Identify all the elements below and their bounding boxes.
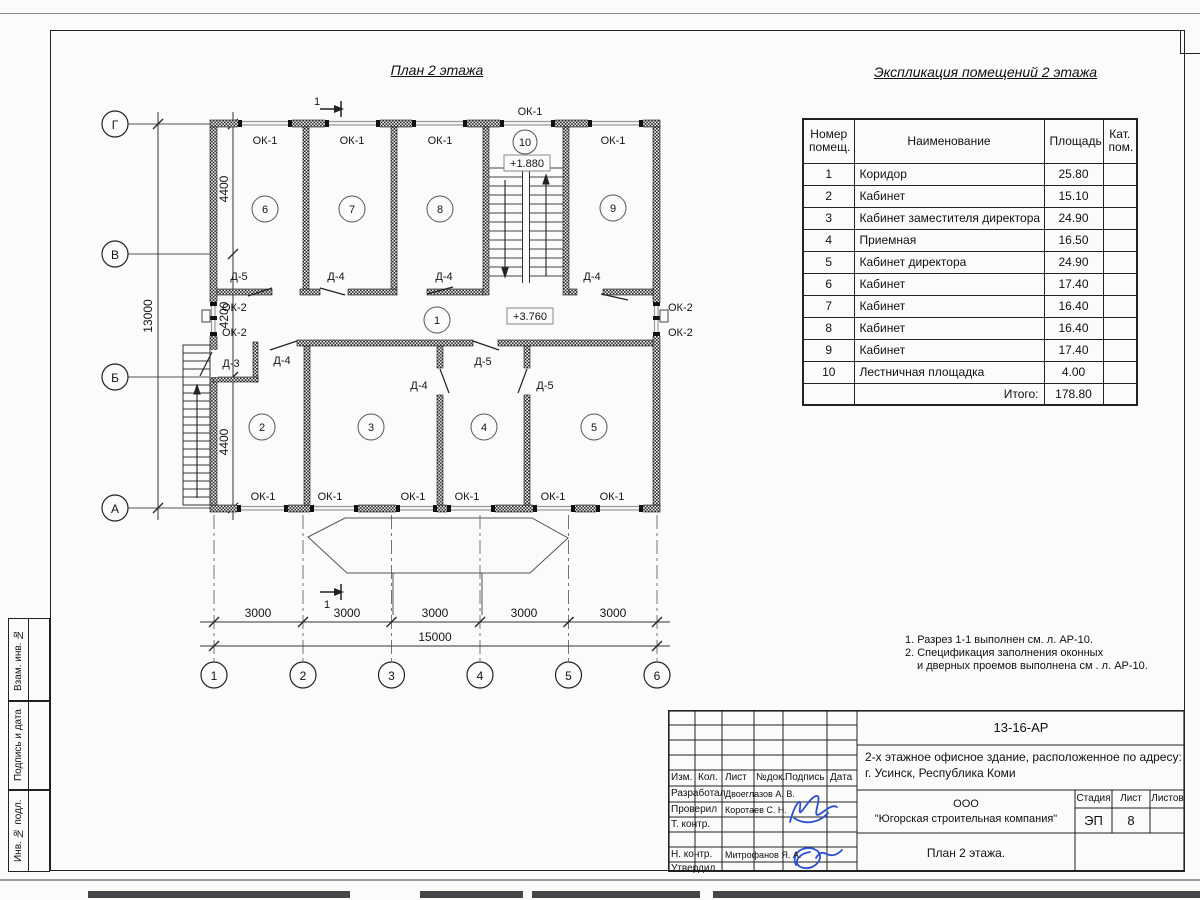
section-mark-top: 1: [314, 96, 344, 117]
title-block: Изм. Кол. Лист №док. Подпись Дата Разраб…: [668, 710, 1185, 872]
tb-col-kol: Кол.: [698, 772, 718, 783]
door-label: Д-5: [230, 271, 247, 283]
table-row: 8Кабинет16.40: [803, 317, 1137, 339]
explication-table: Номерпомещ. Наименование Площадь Кат.пом…: [802, 118, 1138, 406]
room-number: 6: [262, 204, 268, 216]
window-label: ОК-1: [401, 491, 426, 503]
side-stamp-label: Взам. инв. №: [9, 619, 28, 700]
dim-value: 4400: [217, 175, 231, 202]
table-row: 10Лестничная площадка4.00: [803, 361, 1137, 383]
axis-circles-left: [102, 111, 128, 521]
table-row: 3Кабинет заместителя директора24.90: [803, 207, 1137, 229]
tb-col-podpis: Подпись: [785, 772, 825, 783]
room-number: 4: [481, 422, 487, 434]
door-label: Д-4: [273, 355, 290, 367]
total-label: Итого:: [854, 383, 1044, 405]
scan-smudge: [532, 891, 700, 898]
document-code: 13-16-АР: [857, 720, 1185, 735]
side-stamp-label: Инв. № подл.: [9, 791, 28, 871]
note-line: 2. Спецификация заполнения оконных: [905, 647, 1148, 660]
door-label: Д-3: [222, 358, 239, 370]
room-number: 1: [434, 315, 440, 327]
side-stamp-vzam: Взам. инв. №: [8, 618, 50, 701]
side-stamp-podpis: Подпись и дата: [8, 701, 50, 790]
table-row: 9Кабинет17.40: [803, 339, 1137, 361]
level-value: +1.880: [510, 158, 544, 170]
scanned-drawing-sheet: { "plan": { "title": "План 2 этажа", "se…: [0, 0, 1200, 900]
section-number: 1: [314, 96, 320, 108]
axis-letter: А: [111, 502, 119, 516]
entrance-canopy: [308, 518, 568, 615]
column-header-area: Площадь: [1044, 119, 1103, 163]
scan-edge-bottom: [0, 879, 1200, 881]
door-label: Д-4: [435, 271, 452, 283]
room-number: 3: [368, 422, 374, 434]
column-header-category: Кат.пом.: [1103, 119, 1137, 163]
tb-name: Коротаев С. Н.: [725, 805, 787, 815]
table-row: 7Кабинет16.40: [803, 295, 1137, 317]
column-header-name: Наименование: [854, 119, 1044, 163]
tb-col-data: Дата: [830, 772, 852, 783]
axis-letter: В: [111, 248, 119, 262]
door-label: Д-4: [410, 380, 427, 392]
stage-value: ЭП: [1075, 813, 1112, 828]
note-line: 1. Разрез 1-1 выполнен см. л. АР-10.: [905, 634, 1148, 647]
axis-number: 4: [477, 669, 484, 683]
axis-circles-bottom: [201, 662, 670, 688]
sheet-number: 8: [1112, 813, 1150, 828]
table-row: 1Коридор25.80: [803, 163, 1137, 185]
dim-value: 3000: [511, 606, 538, 620]
tb-name: Двоеглазов А. В.: [725, 789, 795, 799]
room-number: 7: [349, 204, 355, 216]
table-row: 5Кабинет директора24.90: [803, 251, 1137, 273]
window-label: ОК-2: [222, 327, 247, 339]
window-label: ОК-1: [340, 135, 365, 147]
axis-number: 3: [388, 669, 395, 683]
room-number: 2: [259, 422, 265, 434]
door-label: Д-5: [536, 380, 553, 392]
note-line: и дверных проемов выполнена см . л. АР-1…: [905, 660, 1148, 673]
side-stamp-inv: Инв. № подл.: [8, 790, 50, 872]
tb-col-izm: Изм.: [671, 772, 692, 783]
axis-letter: Г: [112, 118, 119, 132]
explication-title: Экспликация помещений 2 этажа: [858, 64, 1113, 80]
door-label: Д-5: [474, 356, 491, 368]
window-label: ОК-1: [318, 491, 343, 503]
axis-number: 2: [300, 669, 307, 683]
dim-value: 13000: [141, 299, 155, 333]
door-label: Д-4: [327, 271, 344, 283]
notes: 1. Разрез 1-1 выполнен см. л. АР-10. 2. …: [905, 634, 1148, 673]
dim-value: 3000: [245, 606, 272, 620]
object-description-line2: г. Усинск, Республика Коми: [865, 766, 1016, 780]
table-row: 6Кабинет17.40: [803, 273, 1137, 295]
window-label: ОК-1: [601, 135, 626, 147]
tb-role: Т. контр.: [671, 819, 710, 830]
window-label: ОК-1: [253, 135, 278, 147]
tb-col-ndok: №док.: [756, 772, 785, 783]
tb-col-list: Лист: [725, 772, 747, 783]
side-stamp-label: Подпись и дата: [9, 702, 28, 789]
room-number: 8: [437, 204, 443, 216]
total-area: 178.80: [1044, 383, 1103, 405]
scan-smudge: [420, 891, 523, 898]
section-number: 1: [324, 599, 330, 611]
dim-value: 3000: [334, 606, 361, 620]
sheets-label: Листов: [1150, 793, 1185, 804]
company-line2: "Югорская строительная компания": [857, 813, 1075, 825]
window-label: ОК-1: [428, 135, 453, 147]
stair-stringer-gap: [523, 165, 530, 283]
window-label: ОК-2: [668, 302, 693, 314]
dim-value: 3000: [422, 606, 449, 620]
column-header-number: Номерпомещ.: [803, 119, 854, 163]
window-label: ОК-1: [518, 106, 543, 118]
tb-role: Утвердил: [671, 863, 715, 874]
scan-smudge: [713, 891, 1200, 898]
tb-role: Проверил: [671, 804, 717, 815]
window-label: ОК-1: [541, 491, 566, 503]
tb-role: Разработал: [671, 788, 725, 799]
table-row: 2Кабинет15.10: [803, 185, 1137, 207]
company-line1: ООО: [857, 798, 1075, 810]
sheet-corner-box: [1180, 31, 1200, 54]
table-row: 4Приемная16.50: [803, 229, 1137, 251]
object-description-line1: 2-х этажное офисное здание, расположенно…: [865, 750, 1182, 764]
window-label: ОК-1: [600, 491, 625, 503]
window-label: ОК-2: [222, 302, 247, 314]
table-total-row: Итого:178.80: [803, 383, 1137, 405]
axis-letter: Б: [111, 371, 119, 385]
window-label: ОК-2: [668, 327, 693, 339]
window-label: ОК-1: [251, 491, 276, 503]
tb-role: Н. контр.: [671, 849, 712, 860]
axis-number: 5: [565, 669, 572, 683]
room-number: 5: [591, 422, 597, 434]
dim-value: 4400: [217, 428, 231, 455]
sheet-label: Лист: [1112, 793, 1150, 804]
room-number: 9: [610, 203, 616, 215]
floor-plan-drawing: 1 1 Г В Б А 1 2 3 4 5 6 4400 4200 4400 1…: [0, 0, 780, 700]
dim-value: 15000: [418, 630, 452, 644]
scan-smudge: [88, 891, 350, 898]
level-value: +3.760: [513, 311, 547, 323]
sheet-title: План 2 этажа.: [857, 846, 1075, 860]
tb-name: Митрофанов Я. А.: [725, 850, 801, 860]
room-number: 10: [519, 137, 531, 149]
axis-number: 1: [211, 669, 218, 683]
axis-number: 6: [654, 669, 661, 683]
door-label: Д-4: [583, 271, 600, 283]
dim-value: 3000: [600, 606, 627, 620]
window-label: ОК-1: [455, 491, 480, 503]
stage-label: Стадия: [1075, 793, 1112, 804]
